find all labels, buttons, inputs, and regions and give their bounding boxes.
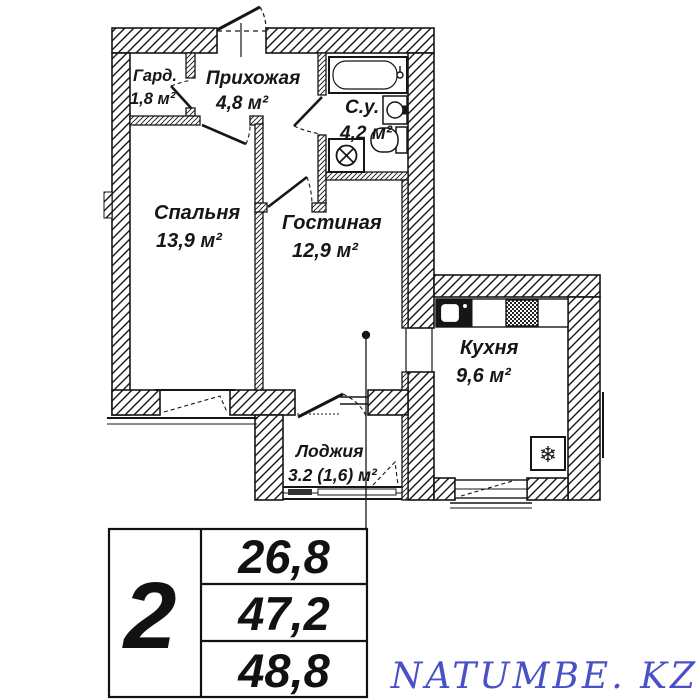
loggia-area: 3.2 (1,6) м² [288, 465, 378, 485]
watermark: NATUMBE. KZ [390, 656, 698, 697]
summary-table: 2 26,8 47,2 48,8 [109, 529, 367, 697]
bathroom-area: 4,2 м² [339, 123, 393, 144]
hallway-name: Прихожая [206, 68, 300, 89]
fridge-icon: ❄ [531, 437, 565, 470]
area-total: 48,8 [237, 644, 330, 697]
kitchen-counter [436, 299, 568, 327]
loggia-name: Лоджия [294, 441, 363, 461]
bedroom-name: Спальня [154, 202, 240, 224]
kitchen-sink-icon [440, 303, 460, 323]
living-room-area: 12,9 м² [292, 240, 359, 262]
kitchen-area: 9,6 м² [456, 365, 512, 387]
area-usable: 47,2 [237, 587, 329, 640]
floor-plan-page: ❄ Гард. 1,8 м² Прихожая 4,8 м² С.у. 4,2 … [0, 0, 700, 700]
bathroom-sink-icon [383, 96, 408, 124]
bedroom-area: 13,9 м² [156, 230, 223, 252]
svg-text:❄: ❄ [539, 443, 557, 468]
kitchen-window [450, 480, 532, 508]
floor-plan-drawing: ❄ Гард. 1,8 м² Прихожая 4,8 м² С.у. 4,2 … [0, 0, 700, 700]
area-living: 26,8 [237, 530, 330, 583]
kitchen-name: Кухня [460, 337, 519, 359]
rooms-count: 2 [122, 563, 177, 669]
hallway-area: 4,8 м² [215, 93, 269, 114]
stove-icon [506, 300, 538, 326]
bathroom-name: С.у. [345, 97, 379, 118]
wardrobe-area: 1,8 м² [130, 90, 176, 108]
living-room-name: Гостиная [282, 212, 382, 234]
wardrobe-name: Гард. [133, 67, 177, 85]
bathtub-icon [329, 57, 407, 93]
